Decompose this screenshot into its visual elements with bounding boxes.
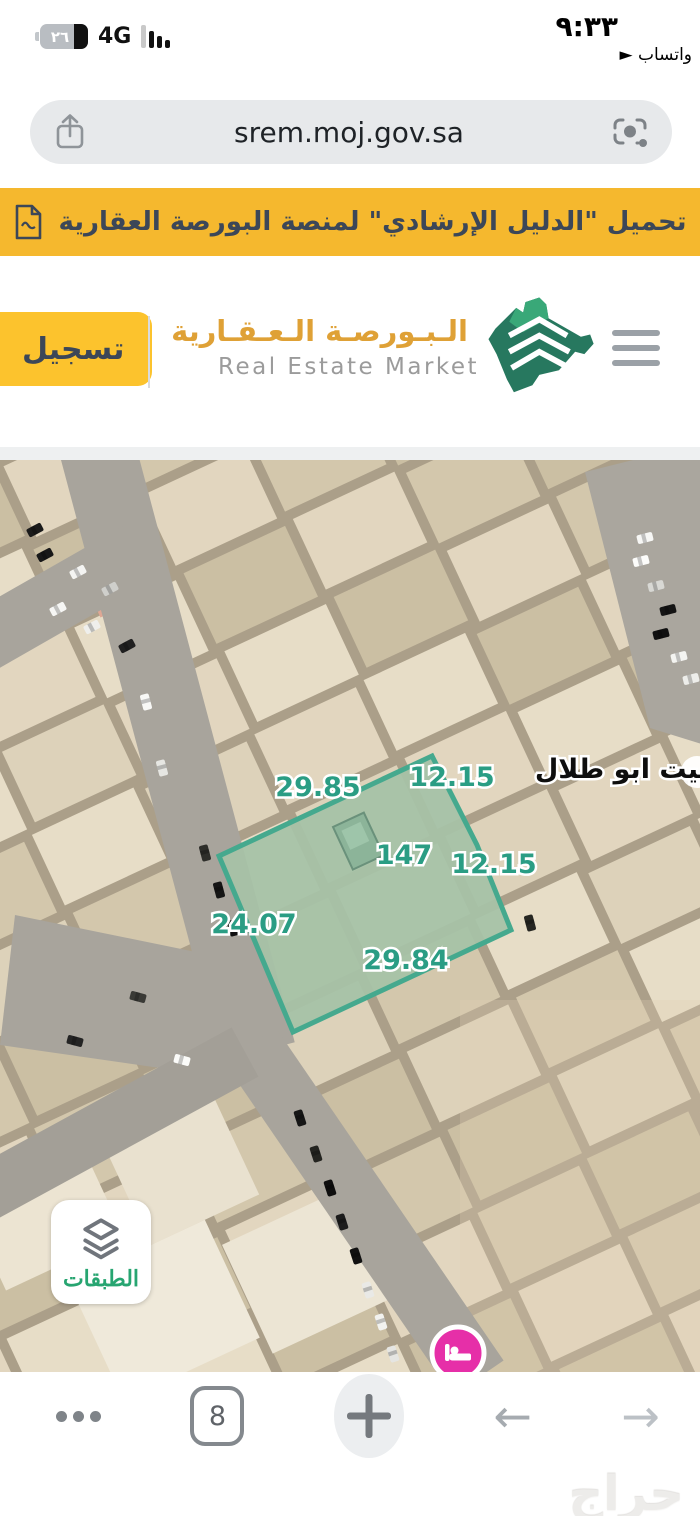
saudi-map-logo xyxy=(478,294,596,398)
forward-arrow-button[interactable]: → xyxy=(621,1393,660,1439)
brand-name-arabic: الـبـورصـة الـعـقـارية xyxy=(218,314,468,348)
dim-bottom: 29.84 xyxy=(363,945,448,976)
register-button[interactable]: تسجيل xyxy=(0,312,152,386)
phone-screen: ٢٦ 4G ٩:٣٣ ► واتساب srem.moj.gov.sa xyxy=(0,0,700,1516)
dim-top-right: 12.15 xyxy=(409,762,494,793)
signal-bars-icon xyxy=(141,25,170,48)
dim-area: 147 xyxy=(376,840,432,871)
return-to-app-link[interactable]: ► واتساب xyxy=(556,45,692,65)
status-right-cluster: ٩:٣٣ ► واتساب xyxy=(556,12,692,65)
hotel-poi-icon[interactable] xyxy=(432,1327,484,1372)
haraj-watermark: حراج xyxy=(569,1466,685,1516)
status-bar: ٢٦ 4G ٩:٣٣ ► واتساب xyxy=(0,0,700,88)
pdf-file-icon xyxy=(13,204,43,240)
tab-switcher-button[interactable]: 8 xyxy=(190,1386,244,1446)
brand-name-english: Real Estate Market xyxy=(218,354,468,380)
map-light-zone xyxy=(460,1000,700,1372)
share-icon[interactable] xyxy=(52,112,88,152)
more-menu-icon[interactable] xyxy=(56,1411,101,1422)
url-text[interactable]: srem.moj.gov.sa xyxy=(234,116,464,149)
back-arrow-button[interactable]: ← xyxy=(493,1393,532,1439)
browser-chrome-top: srem.moj.gov.sa xyxy=(0,88,700,188)
status-left-cluster: ٢٦ 4G xyxy=(40,24,170,49)
menu-hamburger-icon[interactable] xyxy=(612,330,662,375)
status-time: ٩:٣٣ xyxy=(556,12,618,43)
url-bar[interactable]: srem.moj.gov.sa xyxy=(30,100,672,164)
place-label: بيت ابو طلال xyxy=(535,754,700,785)
brand-logo-text: الـبـورصـة الـعـقـارية Real Estate Marke… xyxy=(218,314,468,380)
dim-right: 12.15 xyxy=(451,849,536,880)
dim-top: 29.85 xyxy=(275,772,360,803)
header-divider xyxy=(148,316,150,388)
layers-label: الطبقات xyxy=(63,1266,139,1292)
site-header: تسجيل الـبـورصـة الـعـقـارية Real Estate… xyxy=(0,256,700,460)
battery-icon: ٢٦ xyxy=(40,24,88,49)
satellite-map[interactable]: 29.85 12.15 147 12.15 24.07 29.84 بيت اب… xyxy=(0,460,700,1372)
footer-strip: حراج xyxy=(0,1460,700,1516)
browser-toolbar: 8 ← → xyxy=(0,1372,700,1460)
guide-download-banner[interactable]: تحميل "الدليل الإرشادي" لمنصة البورصة ال… xyxy=(0,188,700,256)
network-type: 4G xyxy=(98,24,131,49)
new-tab-button[interactable] xyxy=(334,1374,404,1458)
battery-percent: ٢٦ xyxy=(51,28,77,46)
banner-text: تحميل "الدليل الإرشادي" لمنصة البورصة ال… xyxy=(58,207,686,237)
layers-button[interactable]: الطبقات xyxy=(51,1200,151,1304)
layers-icon xyxy=(73,1212,129,1260)
lens-camera-icon[interactable] xyxy=(610,112,650,152)
header-divider-strip xyxy=(0,447,700,460)
dim-left: 24.07 xyxy=(211,909,296,940)
